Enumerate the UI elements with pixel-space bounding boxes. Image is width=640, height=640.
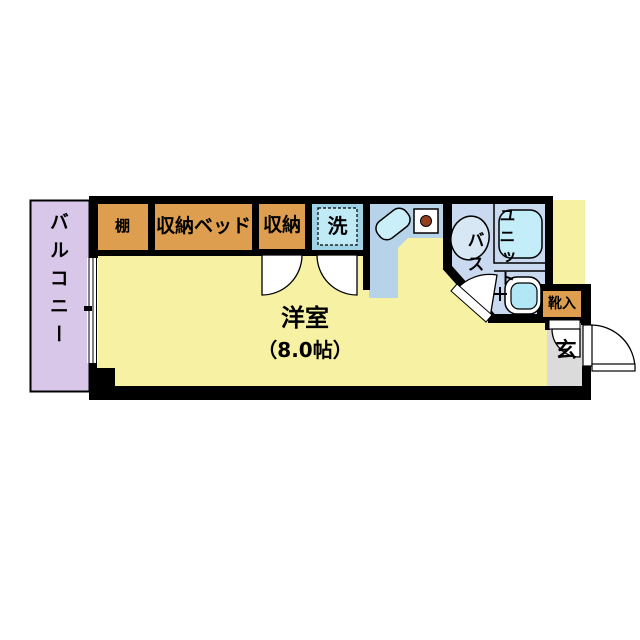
floor-plan-drawing: [0, 0, 640, 640]
balcony-area: [31, 201, 90, 392]
floor-plan: バルコニー 棚 収納ベッド 収納 洗 洋室 （8.0帖） ユニット バス 靴入 …: [0, 0, 640, 640]
front-door: [583, 325, 592, 366]
shelf-box: [97, 203, 148, 250]
toilet-lid: [511, 283, 537, 309]
wall-washer-kitchen: [363, 250, 370, 290]
washer-pan: [318, 208, 357, 245]
stove-burner: [421, 216, 432, 227]
bathtub: [499, 210, 542, 258]
wall-bath-right: [545, 196, 553, 292]
window-latch: [84, 306, 92, 311]
storage-box: [259, 203, 305, 249]
wall-bottom: [93, 386, 591, 400]
wall-right-lower: [582, 366, 591, 400]
wall-top: [90, 196, 553, 204]
genkan-door: [549, 320, 580, 329]
front-door-closed-line: [592, 364, 635, 371]
wall-kitchen-bath: [443, 196, 452, 270]
storage-bed-box: [155, 203, 252, 250]
front-door-arc: [591, 325, 635, 369]
shoe-box: [543, 291, 581, 317]
wall-left-upper: [89, 196, 98, 258]
